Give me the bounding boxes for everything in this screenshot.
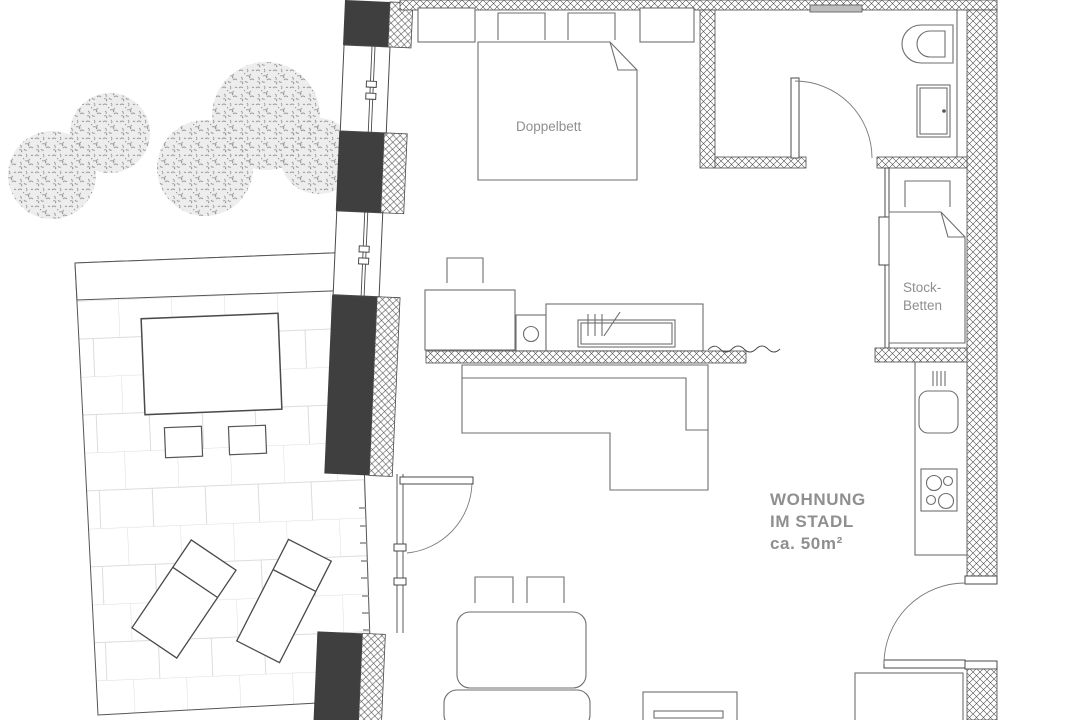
sofa-bed-extension xyxy=(444,690,590,720)
title-block: WOHNUNG IM STADL ca. 50m² xyxy=(770,490,866,553)
bunk-bed xyxy=(889,212,965,343)
door-jamb xyxy=(965,576,997,584)
wall-insulation xyxy=(358,633,385,720)
kitchenette xyxy=(425,258,780,363)
double-bed xyxy=(478,42,637,180)
desk xyxy=(425,290,515,350)
nightstand xyxy=(418,8,475,42)
door-leaf xyxy=(400,477,473,484)
half-wall xyxy=(426,351,746,363)
bathroom xyxy=(700,5,967,168)
bunk-bed-room: Stock- Betten xyxy=(875,168,967,362)
kitchen-right xyxy=(915,362,967,555)
bathroom-door-leaf xyxy=(791,78,799,158)
wall-insulation xyxy=(967,669,997,720)
terrace-glass-door xyxy=(394,474,473,633)
terrace-table xyxy=(141,313,282,414)
wall-insulation xyxy=(381,133,407,214)
wardrobe xyxy=(855,673,963,720)
exterior-wall-top xyxy=(400,0,997,10)
cushion xyxy=(527,577,564,603)
title-line: ca. 50m² xyxy=(770,534,843,553)
bathroom-door-swing-arc xyxy=(795,81,872,158)
entrance-door-leaf xyxy=(884,660,965,668)
double-bed-label: Doppelbett xyxy=(516,119,582,134)
title-line: WOHNUNG xyxy=(770,490,866,509)
pillow xyxy=(905,181,950,207)
wall-segment xyxy=(336,131,384,213)
bathroom-wall-bottom xyxy=(877,157,967,168)
cushion xyxy=(475,577,513,603)
bunk-bed-label: Stock- xyxy=(903,280,941,295)
title-line: IM STADL xyxy=(770,512,854,531)
sofa xyxy=(457,612,586,688)
door-jamb xyxy=(965,661,997,669)
tree-group-left xyxy=(8,93,150,219)
nightstand xyxy=(640,8,694,42)
bathroom-wall-left xyxy=(700,10,715,168)
bathroom-sink xyxy=(917,85,950,137)
floor-plan: Stock- Betten Doppelbett xyxy=(0,0,1080,720)
terrace-chair xyxy=(164,426,202,457)
bathroom-wall-bottom xyxy=(715,157,806,168)
bunkroom-wall-bottom xyxy=(875,348,967,362)
bathroom-shelf xyxy=(810,5,862,12)
pillow xyxy=(568,13,615,40)
wall-insulation xyxy=(967,10,997,576)
cabinet xyxy=(516,315,546,351)
window xyxy=(333,211,383,297)
wall-segment xyxy=(314,631,363,720)
pillow xyxy=(498,13,545,40)
tree-group-right xyxy=(157,62,356,216)
toilet xyxy=(902,25,953,63)
terrace-chair xyxy=(228,425,266,454)
door-swing-arc xyxy=(407,483,472,553)
chair xyxy=(447,258,483,283)
entrance-door-swing-arc xyxy=(884,583,965,664)
bunk-bed-label: Betten xyxy=(903,298,942,313)
dining-bench xyxy=(462,365,708,490)
bedroom: Doppelbett xyxy=(418,8,694,180)
bunkroom-door-leaf xyxy=(879,217,889,265)
wall-segment xyxy=(343,0,390,47)
window xyxy=(340,45,390,133)
tv-sideboard xyxy=(643,692,737,720)
wall-segment xyxy=(324,295,377,476)
